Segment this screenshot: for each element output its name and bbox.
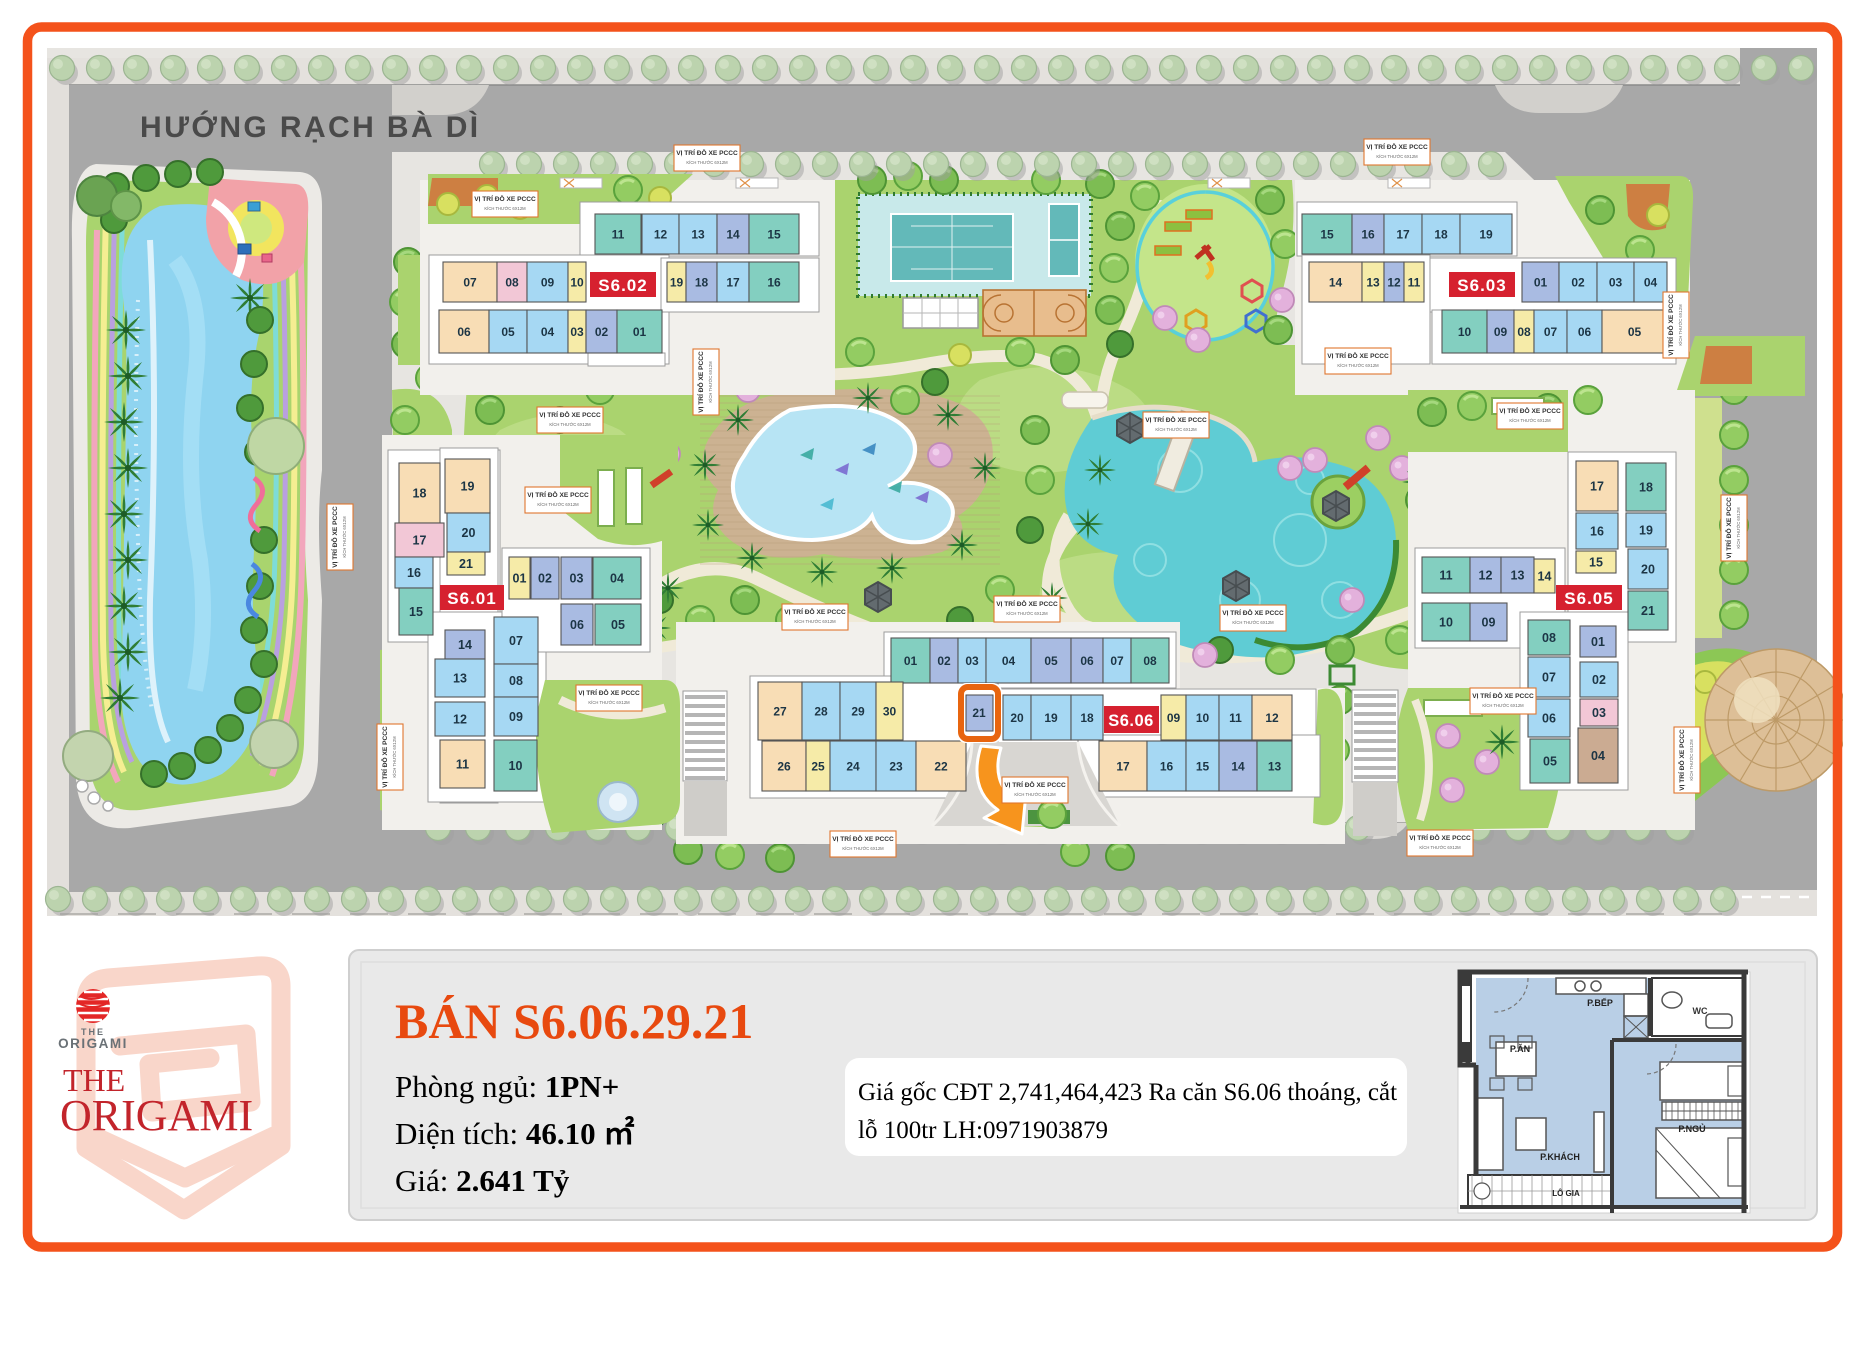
svg-text:S6.06: S6.06 [1108, 712, 1154, 730]
svg-text:HƯỚNG RẠCH BÀ DÌ: HƯỚNG RẠCH BÀ DÌ [140, 110, 481, 144]
svg-text:VỊ TRÍ ĐỖ XE PCCC: VỊ TRÍ ĐỖ XE PCCC [696, 351, 705, 413]
svg-text:14: 14 [1329, 275, 1343, 289]
svg-text:02: 02 [937, 654, 951, 668]
svg-text:VỊ TRÍ ĐỖ XE PCCC: VỊ TRÍ ĐỖ XE PCCC [1666, 294, 1675, 356]
svg-text:VỊ TRÍ ĐỖ XE PCCC: VỊ TRÍ ĐỖ XE PCCC [474, 194, 536, 203]
svg-text:14: 14 [726, 227, 740, 241]
svg-text:17: 17 [1590, 480, 1604, 494]
svg-text:VỊ TRÍ ĐỖ XE PCCC: VỊ TRÍ ĐỖ XE PCCC [380, 726, 389, 788]
svg-text:KÍCH THƯỚC 6X12M: KÍCH THƯỚC 6X12M [1337, 363, 1379, 368]
svg-text:27: 27 [773, 704, 787, 718]
svg-text:KÍCH THƯỚC 6X12M: KÍCH THƯỚC 6X12M [794, 619, 836, 624]
svg-text:10: 10 [1196, 711, 1210, 725]
svg-text:03: 03 [570, 572, 584, 586]
svg-text:19: 19 [1639, 524, 1653, 538]
svg-text:03: 03 [1592, 706, 1606, 720]
svg-text:08: 08 [505, 275, 519, 289]
svg-text:KÍCH THƯỚC 6X12M: KÍCH THƯỚC 6X12M [1155, 427, 1197, 432]
svg-text:KÍCH THƯỚC 6X12M: KÍCH THƯỚC 6X12M [1689, 739, 1694, 781]
svg-text:10: 10 [509, 759, 523, 773]
svg-text:21: 21 [1641, 604, 1655, 618]
svg-text:18: 18 [1080, 711, 1094, 725]
svg-text:KÍCH THƯỚC 6X12M: KÍCH THƯỚC 6X12M [1006, 611, 1048, 616]
svg-text:S6.05: S6.05 [1564, 589, 1613, 608]
svg-text:08: 08 [509, 674, 523, 688]
svg-text:KÍCH THƯỚC 6X12M: KÍCH THƯỚC 6X12M [1509, 418, 1551, 423]
svg-text:01: 01 [1534, 275, 1548, 289]
svg-text:22: 22 [934, 759, 948, 773]
svg-text:06: 06 [1542, 712, 1556, 726]
svg-text:01: 01 [513, 572, 527, 586]
svg-text:LÔ GIA: LÔ GIA [1552, 1189, 1580, 1198]
svg-text:KÍCH THƯỚC 6X12M: KÍCH THƯỚC 6X12M [549, 422, 591, 427]
svg-text:02: 02 [538, 572, 552, 586]
svg-text:09: 09 [509, 710, 523, 724]
svg-text:20: 20 [1641, 563, 1655, 577]
svg-text:P.BẾP: P.BẾP [1587, 998, 1613, 1008]
svg-text:09: 09 [1167, 711, 1181, 725]
svg-text:15: 15 [1589, 556, 1603, 570]
svg-text:ORIGAMI: ORIGAMI [58, 1036, 128, 1051]
svg-text:19: 19 [1044, 711, 1058, 725]
svg-text:VỊ TRÍ ĐỖ XE PCCC: VỊ TRÍ ĐỖ XE PCCC [527, 490, 589, 499]
svg-text:24: 24 [846, 759, 860, 773]
svg-text:14: 14 [458, 638, 472, 652]
svg-text:KÍCH THƯỚC 6X12M: KÍCH THƯỚC 6X12M [1736, 507, 1741, 549]
svg-text:16: 16 [1160, 759, 1174, 773]
svg-text:15: 15 [1320, 227, 1334, 241]
svg-text:Giá: 2.641 Tỷ: Giá: 2.641 Tỷ [395, 1163, 570, 1198]
svg-text:13: 13 [691, 227, 705, 241]
svg-text:09: 09 [1482, 616, 1496, 630]
svg-text:lỗ 100tr LH:0971903879: lỗ 100tr LH:0971903879 [858, 1117, 1108, 1144]
svg-text:18: 18 [695, 275, 709, 289]
svg-text:05: 05 [1543, 755, 1557, 769]
svg-text:KÍCH THƯỚC 6X12M: KÍCH THƯỚC 6X12M [392, 736, 397, 778]
svg-text:07: 07 [463, 275, 477, 289]
svg-text:P.NGỦ: P.NGỦ [1678, 1123, 1705, 1134]
svg-text:05: 05 [611, 618, 625, 632]
svg-text:12: 12 [453, 713, 467, 727]
svg-text:06: 06 [1578, 325, 1592, 339]
svg-text:18: 18 [1639, 481, 1653, 495]
svg-text:VỊ TRÍ ĐỖ XE PCCC: VỊ TRÍ ĐỖ XE PCCC [1004, 780, 1066, 789]
svg-text:17: 17 [1396, 227, 1410, 241]
svg-text:VỊ TRÍ ĐỖ XE PCCC: VỊ TRÍ ĐỖ XE PCCC [1366, 142, 1428, 151]
svg-text:11: 11 [1408, 275, 1421, 289]
svg-text:S6.02: S6.02 [598, 276, 647, 295]
svg-text:VỊ TRÍ ĐỖ XE PCCC: VỊ TRÍ ĐỖ XE PCCC [1409, 833, 1471, 842]
svg-text:16: 16 [1361, 227, 1375, 241]
svg-text:05: 05 [1044, 654, 1058, 668]
svg-text:VỊ TRÍ ĐỖ XE PCCC: VỊ TRÍ ĐỖ XE PCCC [539, 410, 601, 419]
svg-text:17: 17 [1116, 759, 1130, 773]
svg-text:05: 05 [1628, 325, 1642, 339]
svg-text:KÍCH THƯỚC 6X12M: KÍCH THƯỚC 6X12M [484, 206, 526, 211]
svg-text:05: 05 [501, 325, 515, 339]
svg-text:10: 10 [570, 275, 584, 289]
svg-text:06: 06 [1080, 654, 1094, 668]
svg-text:Giá gốc CĐT 2,741,464,423 Ra c: Giá gốc CĐT 2,741,464,423 Ra căn S6.06 t… [858, 1079, 1397, 1106]
svg-text:VỊ TRÍ ĐỖ XE PCCC: VỊ TRÍ ĐỖ XE PCCC [1222, 608, 1284, 617]
svg-text:KÍCH THƯỚC 6X12M: KÍCH THƯỚC 6X12M [1014, 792, 1056, 797]
svg-text:S6.03: S6.03 [1457, 276, 1506, 295]
svg-text:14: 14 [1538, 570, 1552, 584]
svg-text:VỊ TRÍ ĐỖ XE PCCC: VỊ TRÍ ĐỖ XE PCCC [676, 148, 738, 157]
svg-text:14: 14 [1231, 759, 1245, 773]
svg-text:01: 01 [904, 654, 918, 668]
svg-text:21: 21 [972, 706, 986, 720]
svg-text:VỊ TRÍ ĐỖ XE PCCC: VỊ TRÍ ĐỖ XE PCCC [996, 599, 1058, 608]
svg-text:KÍCH THƯỚC 6X12M: KÍCH THƯỚC 6X12M [1232, 620, 1274, 625]
svg-text:VỊ TRÍ ĐỖ XE PCCC: VỊ TRÍ ĐỖ XE PCCC [1724, 497, 1733, 559]
svg-text:VỊ TRÍ ĐỖ XE PCCC: VỊ TRÍ ĐỖ XE PCCC [1472, 691, 1534, 700]
svg-text:S6.01: S6.01 [447, 589, 496, 608]
svg-text:VỊ TRÍ ĐỖ XE PCCC: VỊ TRÍ ĐỖ XE PCCC [1327, 351, 1389, 360]
svg-text:09: 09 [541, 275, 555, 289]
svg-text:18: 18 [1434, 227, 1448, 241]
svg-text:11: 11 [456, 758, 469, 772]
svg-text:KÍCH THƯỚC 6X12M: KÍCH THƯỚC 6X12M [537, 502, 579, 507]
svg-text:VỊ TRÍ ĐỖ XE PCCC: VỊ TRÍ ĐỖ XE PCCC [784, 607, 846, 616]
svg-text:11: 11 [1439, 569, 1452, 583]
svg-text:16: 16 [767, 275, 781, 289]
svg-text:30: 30 [883, 704, 897, 718]
svg-text:07: 07 [1544, 325, 1558, 339]
svg-text:KÍCH THƯỚC 6X12M: KÍCH THƯỚC 6X12M [1678, 304, 1683, 346]
svg-text:KÍCH THƯỚC 6X12M: KÍCH THƯỚC 6X12M [686, 160, 728, 165]
svg-text:21: 21 [459, 557, 473, 571]
svg-text:Phòng ngủ: 1PN+: Phòng ngủ: 1PN+ [395, 1069, 619, 1104]
svg-text:12: 12 [1265, 711, 1279, 725]
svg-text:12: 12 [1479, 569, 1493, 583]
svg-text:13: 13 [1366, 275, 1380, 289]
svg-text:20: 20 [1010, 711, 1024, 725]
svg-text:08: 08 [1143, 654, 1157, 668]
svg-text:09: 09 [1494, 325, 1508, 339]
svg-text:15: 15 [1196, 759, 1210, 773]
svg-text:KÍCH THƯỚC 6X12M: KÍCH THƯỚC 6X12M [1482, 703, 1524, 708]
svg-text:VỊ TRÍ ĐỖ XE PCCC: VỊ TRÍ ĐỖ XE PCCC [578, 688, 640, 697]
svg-text:ORIGAMI: ORIGAMI [60, 1091, 253, 1140]
svg-text:03: 03 [1609, 275, 1623, 289]
svg-text:29: 29 [851, 704, 865, 718]
svg-text:07: 07 [1542, 671, 1556, 685]
svg-text:11: 11 [1229, 711, 1242, 725]
svg-text:VỊ TRÍ ĐỖ XE PCCC: VỊ TRÍ ĐỖ XE PCCC [330, 506, 339, 568]
svg-text:02: 02 [1571, 275, 1585, 289]
svg-text:VỊ TRÍ ĐỖ XE PCCC: VỊ TRÍ ĐỖ XE PCCC [1499, 406, 1561, 415]
svg-text:10: 10 [1458, 325, 1472, 339]
svg-text:VỊ TRÍ ĐỖ XE PCCC: VỊ TRÍ ĐỖ XE PCCC [832, 834, 894, 843]
svg-text:26: 26 [777, 759, 791, 773]
svg-text:16: 16 [407, 566, 421, 580]
svg-text:16: 16 [1590, 525, 1604, 539]
svg-text:07: 07 [1110, 654, 1124, 668]
svg-text:VỊ TRÍ ĐỖ XE PCCC: VỊ TRÍ ĐỖ XE PCCC [1677, 729, 1686, 791]
svg-text:04: 04 [610, 572, 624, 586]
svg-text:01: 01 [1591, 635, 1605, 649]
svg-text:04: 04 [1002, 654, 1016, 668]
svg-text:KÍCH THƯỚC 6X12M: KÍCH THƯỚC 6X12M [342, 516, 347, 558]
svg-text:11: 11 [612, 227, 625, 241]
svg-text:07: 07 [509, 634, 523, 648]
svg-text:03: 03 [965, 654, 979, 668]
svg-text:17: 17 [413, 534, 427, 548]
svg-text:25: 25 [811, 759, 825, 773]
svg-text:08: 08 [1542, 631, 1556, 645]
svg-text:06: 06 [570, 618, 584, 632]
svg-text:P.KHÁCH: P.KHÁCH [1540, 1152, 1580, 1162]
svg-text:12: 12 [654, 227, 668, 241]
svg-text:04: 04 [1644, 275, 1658, 289]
svg-text:KÍCH THƯỚC 6X12M: KÍCH THƯỚC 6X12M [1419, 845, 1461, 850]
svg-text:13: 13 [1268, 759, 1282, 773]
svg-text:01: 01 [633, 325, 647, 339]
svg-text:KÍCH THƯỚC 6X12M: KÍCH THƯỚC 6X12M [1376, 154, 1418, 159]
svg-text:08: 08 [1517, 325, 1531, 339]
svg-text:KÍCH THƯỚC 6X12M: KÍCH THƯỚC 6X12M [588, 700, 630, 705]
svg-text:KÍCH THƯỚC 6X12M: KÍCH THƯỚC 6X12M [708, 361, 713, 403]
svg-text:28: 28 [814, 704, 828, 718]
svg-text:02: 02 [1592, 673, 1606, 687]
svg-text:04: 04 [1591, 749, 1605, 763]
svg-text:18: 18 [413, 487, 427, 501]
svg-text:15: 15 [409, 605, 423, 619]
svg-text:15: 15 [767, 227, 781, 241]
svg-text:VỊ TRÍ ĐỖ XE PCCC: VỊ TRÍ ĐỖ XE PCCC [1145, 415, 1207, 424]
svg-text:12: 12 [1387, 275, 1401, 289]
svg-text:19: 19 [670, 275, 684, 289]
svg-text:19: 19 [1479, 227, 1493, 241]
svg-text:Diện tích: 46.10 ㎡: Diện tích: 46.10 ㎡ [395, 1116, 634, 1151]
svg-text:20: 20 [462, 526, 476, 540]
svg-text:23: 23 [889, 759, 903, 773]
svg-text:03: 03 [570, 325, 584, 339]
svg-text:19: 19 [461, 480, 475, 494]
svg-text:04: 04 [541, 325, 555, 339]
svg-text:06: 06 [457, 325, 471, 339]
svg-text:KÍCH THƯỚC 6X12M: KÍCH THƯỚC 6X12M [842, 846, 884, 851]
svg-text:13: 13 [1511, 569, 1525, 583]
svg-text:BÁN S6.06.29.21: BÁN S6.06.29.21 [395, 993, 753, 1049]
svg-text:WC: WC [1693, 1006, 1708, 1016]
svg-text:13: 13 [453, 672, 467, 686]
svg-text:17: 17 [726, 275, 740, 289]
svg-text:10: 10 [1439, 616, 1453, 630]
svg-text:P.ĂN: P.ĂN [1510, 1044, 1530, 1054]
svg-text:02: 02 [595, 325, 609, 339]
